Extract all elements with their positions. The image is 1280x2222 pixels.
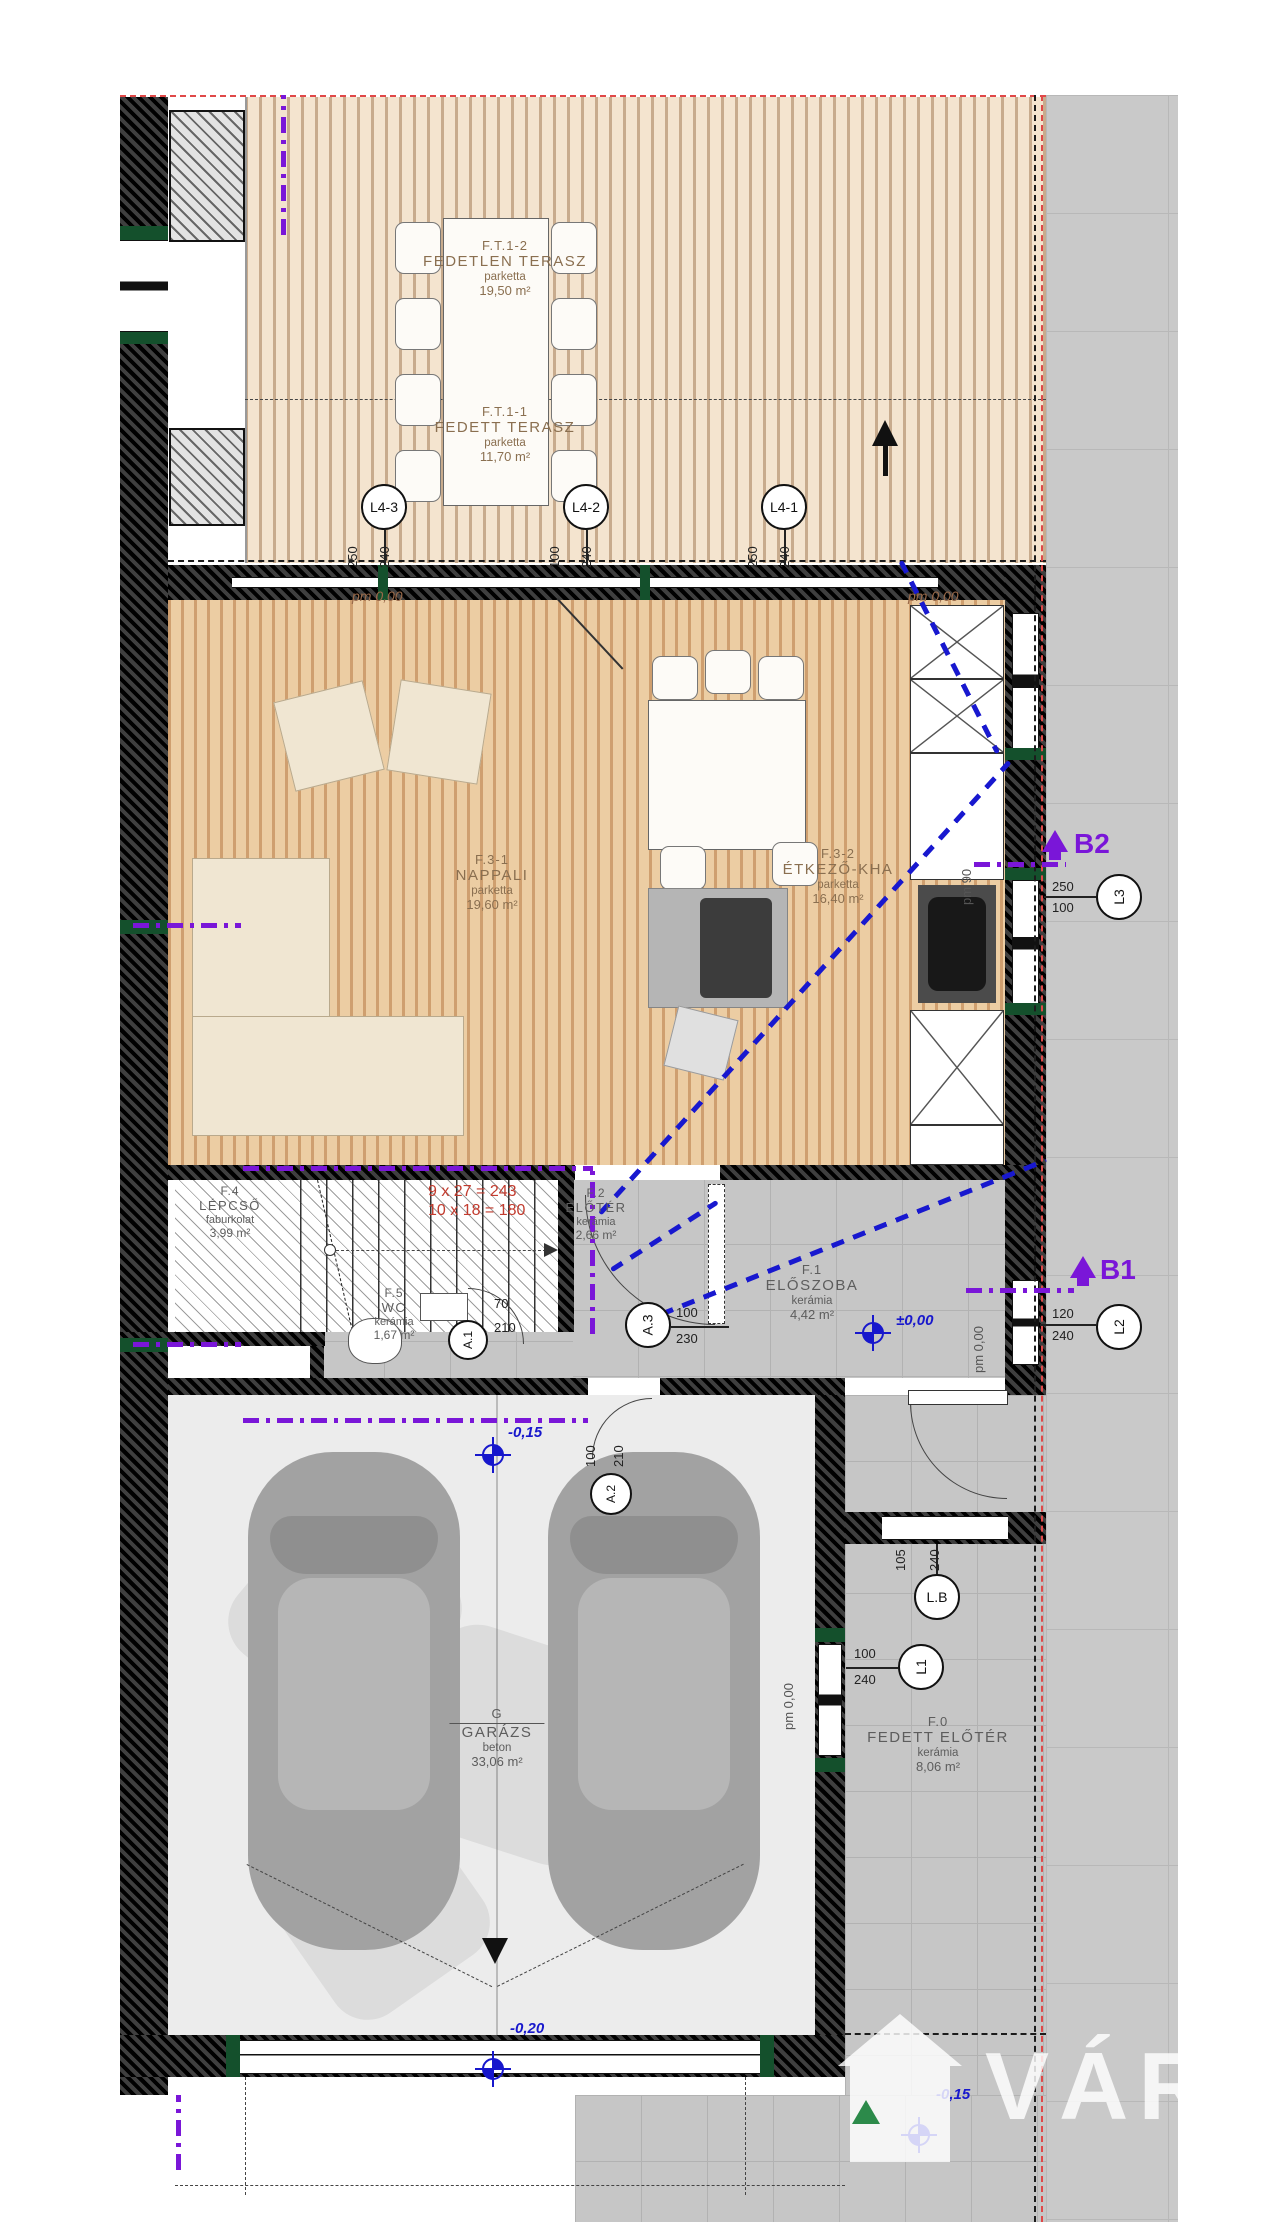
room-name: ELŐSZOBA bbox=[766, 1277, 859, 1294]
wall-garage-top bbox=[168, 1378, 588, 1395]
car-roof bbox=[278, 1578, 430, 1810]
room-id: F.5 bbox=[374, 1286, 415, 1300]
room-stamp-eloter: F.2 ELŐTÉR kerámia 2,66 m² bbox=[565, 1186, 626, 1242]
north-arrow-icon bbox=[872, 420, 898, 446]
marker-dim: 100 bbox=[583, 1445, 598, 1467]
window-band-top bbox=[232, 577, 938, 588]
car-windshield bbox=[270, 1516, 438, 1574]
room-finish: kerámia bbox=[766, 1295, 859, 1307]
property-line-top bbox=[120, 95, 1046, 97]
stair-calc: 9 x 27 = 243 10 x 18 = 180 bbox=[428, 1182, 525, 1220]
room-id: G bbox=[449, 1706, 544, 1724]
door-l1 bbox=[818, 1644, 842, 1756]
marker-dim: 120 bbox=[1052, 1306, 1074, 1321]
room-id: F.2 bbox=[565, 1186, 626, 1200]
marker-a2: A.2 bbox=[590, 1473, 632, 1515]
floor-driveway bbox=[575, 2095, 1046, 2222]
stair-calc-line2: 10 x 18 = 180 bbox=[428, 1201, 525, 1220]
door-opening-a3 bbox=[575, 1165, 720, 1180]
level-benchmark-icon bbox=[482, 1444, 504, 1466]
marker-l2: L2 bbox=[1096, 1304, 1142, 1350]
marker-dim: 250 bbox=[745, 546, 760, 568]
sofa-chaise bbox=[192, 1016, 464, 1136]
room-stamp-lepcso: F.4 LÉPCSŐ faburkolat 3,99 m² bbox=[199, 1184, 261, 1240]
room-area: 19,60 m² bbox=[456, 897, 529, 912]
marker-dim: 70 bbox=[494, 1296, 508, 1311]
wall-garage-top bbox=[660, 1378, 845, 1395]
marker-label: L.B bbox=[926, 1589, 947, 1605]
marker-leader bbox=[1044, 896, 1096, 898]
room-finish: parketta bbox=[456, 885, 529, 897]
terrace-edge-line bbox=[245, 97, 247, 563]
watermark-tree-icon bbox=[852, 2100, 880, 2124]
wall-left bbox=[120, 97, 168, 2095]
level-zero: ±0,00 bbox=[896, 1312, 933, 1329]
room-stamp-fedett-eloter: F.0 FEDETT ELŐTÉR kerámia 8,06 m² bbox=[867, 1714, 1009, 1774]
kitchen-cooktop bbox=[928, 897, 986, 991]
dining-table bbox=[648, 700, 806, 850]
level-minus-020: -0,20 bbox=[510, 2020, 544, 2037]
marker-l4-3: L4-3 bbox=[361, 484, 407, 530]
level-pm-000-v: pm 0,00 bbox=[971, 1326, 986, 1373]
door-leaf-entry bbox=[908, 1390, 1008, 1405]
room-finish: kerámia bbox=[374, 1316, 415, 1328]
room-name: ELŐTÉR bbox=[565, 1200, 626, 1215]
room-id: F.T.1-2 bbox=[423, 238, 587, 253]
room-name: GARÁZS bbox=[449, 1724, 544, 1741]
marker-dim: 210 bbox=[494, 1320, 516, 1335]
room-stamp-etkezo: F.3-2 ÉTKEZŐ-KHA parketta 16,40 m² bbox=[783, 846, 894, 906]
stair-walkline-arrow bbox=[544, 1243, 558, 1257]
dining-chair bbox=[758, 656, 804, 700]
terrace-column bbox=[169, 110, 245, 242]
level-pm-000-v: pm 0,00 bbox=[781, 1683, 796, 1730]
section-arrow-b1 bbox=[1070, 1256, 1096, 1278]
section-label-b2: B2 bbox=[1074, 828, 1110, 860]
section-line-purple bbox=[176, 2095, 181, 2170]
kitchen-island-top bbox=[700, 898, 772, 998]
marker-dim: 240 bbox=[377, 546, 392, 568]
wall-end-block bbox=[1005, 748, 1046, 760]
room-stamp-eloszoba: F.1 ELŐSZOBA kerámia 4,42 m² bbox=[766, 1262, 859, 1322]
marker-dim: 100 bbox=[547, 546, 562, 568]
room-finish: parketta bbox=[435, 437, 576, 449]
marker-label: L4-1 bbox=[770, 499, 798, 515]
north-arrow-stem bbox=[883, 446, 888, 476]
car-roof bbox=[578, 1578, 730, 1810]
room-finish: kerámia bbox=[565, 1216, 626, 1228]
apron-dash-left bbox=[245, 2077, 246, 2195]
watermark-house-icon bbox=[838, 2014, 962, 2066]
room-area: 8,06 m² bbox=[867, 1759, 1009, 1774]
room-name: FEDETT TERASZ bbox=[435, 419, 576, 436]
marker-l4-1: L4-1 bbox=[761, 484, 807, 530]
room-stamp-wc: F.5 WC kerámia 1,67 m² bbox=[374, 1286, 415, 1342]
level-pm-90: pm 90 bbox=[959, 869, 974, 905]
wall-end-block bbox=[815, 1758, 845, 1772]
window-lb bbox=[882, 1516, 1008, 1540]
room-area: 19,50 m² bbox=[423, 283, 587, 298]
marker-l3: L3 bbox=[1096, 874, 1142, 920]
room-area: 33,06 m² bbox=[449, 1754, 544, 1769]
kitchen-cabinet bbox=[910, 1010, 1004, 1125]
marker-dim: 240 bbox=[1052, 1328, 1074, 1343]
apron-dash-right bbox=[745, 2077, 746, 2195]
marker-leader bbox=[1040, 1324, 1096, 1326]
room-finish: beton bbox=[449, 1742, 544, 1754]
marker-label: A.2 bbox=[604, 1485, 618, 1503]
terrace-chair bbox=[551, 298, 597, 350]
section-line-purple bbox=[281, 95, 286, 235]
terrace-column bbox=[169, 428, 245, 526]
room-name: WC bbox=[374, 1300, 415, 1315]
room-finish: faburkolat bbox=[199, 1214, 261, 1226]
room-stamp-garazs: G GARÁZS beton 33,06 m² bbox=[449, 1706, 544, 1769]
room-name: NAPPALI bbox=[456, 867, 529, 884]
room-id: F.0 bbox=[867, 1714, 1009, 1729]
section-line-purple bbox=[243, 1418, 588, 1423]
wall-end-block bbox=[815, 1628, 845, 1642]
section-arrow-b2 bbox=[1042, 830, 1068, 852]
marker-label: L3 bbox=[1111, 889, 1127, 905]
marker-label: L2 bbox=[1111, 1319, 1127, 1335]
section-line-b2 bbox=[974, 862, 1066, 867]
marker-dim: 250 bbox=[345, 546, 360, 568]
wall-end-block bbox=[1005, 868, 1046, 880]
room-finish: kerámia bbox=[867, 1747, 1009, 1759]
marker-leader bbox=[671, 1326, 729, 1328]
stair-walkline bbox=[336, 1250, 546, 1251]
level-pm-000: pm 0,00 bbox=[352, 588, 403, 604]
section-line-purple bbox=[243, 1166, 593, 1171]
stair-walkline-start bbox=[324, 1244, 336, 1256]
wall-end-block bbox=[640, 565, 650, 600]
marker-dim: 210 bbox=[611, 1445, 626, 1467]
level-benchmark-icon bbox=[482, 2058, 504, 2080]
wall-end-block bbox=[226, 2035, 240, 2077]
marker-a1: A.1 bbox=[448, 1320, 488, 1360]
neighbor-strip bbox=[1046, 95, 1178, 2222]
room-id: F.4 bbox=[199, 1184, 261, 1198]
marker-label: L4-3 bbox=[370, 499, 398, 515]
marker-dim: 240 bbox=[927, 1549, 942, 1571]
room-area: 16,40 m² bbox=[783, 891, 894, 906]
room-name: FEDETT ELŐTÉR bbox=[867, 1729, 1009, 1746]
window-left bbox=[120, 240, 168, 332]
dining-chair bbox=[705, 650, 751, 694]
room-area: 3,99 m² bbox=[199, 1226, 261, 1240]
room-id: F.3-2 bbox=[783, 846, 894, 861]
marker-lb: L.B bbox=[914, 1574, 960, 1620]
room-id: F.3-1 bbox=[456, 852, 529, 867]
level-minus-015: -0,15 bbox=[508, 1424, 542, 1441]
dining-chair bbox=[652, 656, 698, 700]
section-line-b1 bbox=[966, 1288, 1074, 1293]
marker-label: L1 bbox=[913, 1659, 929, 1675]
marker-dim: 100 bbox=[1052, 900, 1074, 915]
floor-plan-canvas: 9 x 27 = 243 10 x 18 = 180 B2 B1 L4-3 25… bbox=[0, 0, 1280, 2222]
room-stamp-fedett-terasz: F.T.1-1 FEDETT TERASZ parketta 11,70 m² bbox=[435, 404, 576, 464]
marker-label: L4-2 bbox=[572, 499, 600, 515]
marker-dim: 230 bbox=[676, 1331, 698, 1346]
marker-dim: 105 bbox=[893, 1549, 908, 1571]
room-stamp-nappali: F.3-1 NAPPALI parketta 19,60 m² bbox=[456, 852, 529, 912]
marker-l1: L1 bbox=[898, 1644, 944, 1690]
room-area: 11,70 m² bbox=[435, 449, 576, 464]
marker-dim: 250 bbox=[1052, 879, 1074, 894]
level-benchmark-icon bbox=[862, 1322, 884, 1344]
room-finish: parketta bbox=[783, 879, 894, 891]
section-line-purple bbox=[133, 1342, 241, 1347]
room-finish: parketta bbox=[423, 271, 587, 283]
room-stamp-fedetlen-terasz: F.T.1-2 FEDETLEN TERASZ parketta 19,50 m… bbox=[423, 238, 587, 298]
section-label-b1: B1 bbox=[1100, 1254, 1136, 1286]
room-area: 1,67 m² bbox=[374, 1328, 415, 1342]
watermark-text: VÁROS bbox=[985, 2032, 1280, 2142]
wall-end-block bbox=[120, 226, 168, 240]
room-area: 2,66 m² bbox=[565, 1228, 626, 1242]
room-name: ÉTKEZŐ-KHA bbox=[783, 861, 894, 878]
roof-overhang-dashline bbox=[168, 560, 1046, 562]
marker-dim: 240 bbox=[854, 1672, 876, 1687]
marker-label: A.1 bbox=[461, 1331, 475, 1349]
marker-l4-2: L4-2 bbox=[563, 484, 609, 530]
wall-end-block bbox=[120, 332, 168, 344]
room-area: 4,42 m² bbox=[766, 1307, 859, 1322]
armchair bbox=[386, 679, 491, 784]
kitchen-cabinet-low bbox=[910, 1125, 1004, 1165]
marker-leader bbox=[846, 1667, 898, 1669]
room-name: LÉPCSŐ bbox=[199, 1198, 261, 1213]
marker-a3: A.3 bbox=[625, 1302, 671, 1348]
garage-swing-arrow bbox=[482, 1938, 508, 1964]
dining-chair bbox=[660, 846, 706, 890]
marker-label: A.3 bbox=[640, 1314, 656, 1335]
wall-end-block bbox=[760, 2035, 774, 2077]
wall-end-block bbox=[1005, 1003, 1046, 1015]
car-silhouette bbox=[248, 1452, 460, 1950]
terrace-chair bbox=[395, 298, 441, 350]
property-line-right-black bbox=[1034, 95, 1036, 2222]
stair-calc-line1: 9 x 27 = 243 bbox=[428, 1182, 525, 1201]
level-pm-000: pm 0,00 bbox=[908, 588, 959, 604]
wc-sink bbox=[420, 1293, 468, 1321]
marker-dim: 240 bbox=[579, 546, 594, 568]
marker-dim: 100 bbox=[676, 1305, 698, 1320]
marker-dim: 240 bbox=[777, 546, 792, 568]
room-id: F.T.1-1 bbox=[435, 404, 576, 419]
marker-dim: 100 bbox=[854, 1646, 876, 1661]
section-line-purple bbox=[133, 923, 241, 928]
car-silhouette bbox=[548, 1452, 760, 1950]
car-windshield bbox=[570, 1516, 738, 1574]
room-name: FEDETLEN TERASZ bbox=[423, 253, 587, 270]
room-id: F.1 bbox=[766, 1262, 859, 1277]
covered-terrace-dashline bbox=[245, 399, 1046, 400]
